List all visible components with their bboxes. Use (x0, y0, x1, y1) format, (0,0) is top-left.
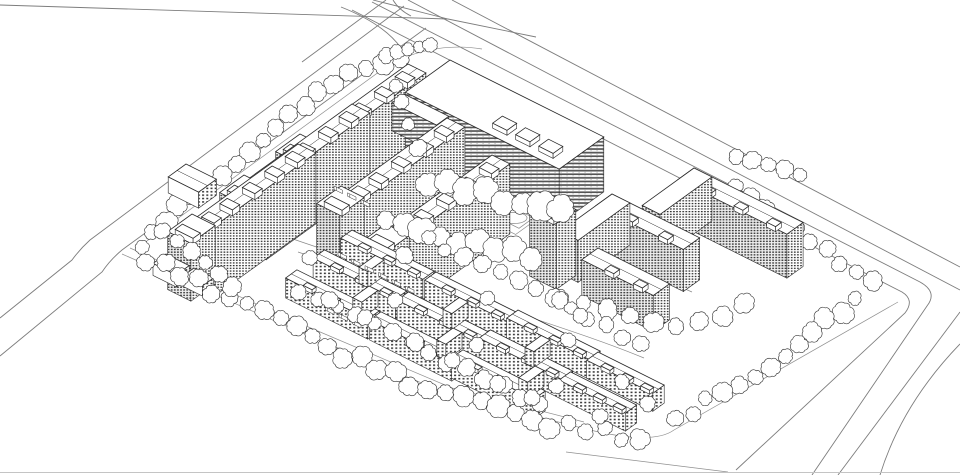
tree (578, 424, 594, 440)
tree (366, 360, 387, 380)
tree (729, 149, 744, 165)
tree (849, 265, 864, 280)
tree (418, 381, 437, 399)
corner-fillet (566, 452, 728, 472)
tree (832, 302, 854, 324)
tree (359, 60, 374, 76)
axonometric-site-plan (0, 0, 960, 475)
branch-fillet-1 (341, 7, 401, 48)
tree (256, 133, 271, 147)
tree (290, 285, 306, 300)
site-plan-canvas (0, 0, 960, 475)
se-corner-trees (666, 291, 861, 426)
tree (734, 293, 755, 313)
tree (170, 234, 184, 247)
tree (137, 254, 155, 271)
tree (819, 240, 836, 257)
tree (437, 385, 453, 401)
tree (748, 370, 763, 385)
sw-road-outer (880, 344, 960, 475)
tree (666, 410, 683, 426)
tree (831, 256, 847, 272)
tree (761, 158, 777, 172)
tree (157, 254, 175, 271)
tree (776, 160, 794, 179)
tree (510, 271, 528, 290)
tree (793, 168, 807, 181)
tree (268, 119, 284, 136)
tree (423, 38, 438, 53)
tree (493, 264, 507, 279)
tree (538, 418, 560, 439)
tree (480, 291, 495, 305)
ne-right-trees (729, 149, 807, 182)
crossing-line (0, 5, 536, 37)
tree (633, 336, 650, 352)
tree (712, 306, 733, 327)
tree (686, 407, 701, 422)
tree (453, 385, 474, 407)
tree (801, 234, 817, 250)
tree (643, 313, 664, 333)
tree (573, 308, 588, 323)
tree (614, 330, 631, 346)
tree (698, 391, 712, 406)
tree (323, 75, 343, 94)
tree (255, 300, 274, 319)
tree (135, 240, 149, 254)
tree (668, 318, 683, 335)
tree (778, 349, 792, 364)
tree (630, 429, 650, 450)
tree (712, 382, 733, 402)
tree (302, 251, 317, 266)
tree (528, 280, 544, 296)
tree (240, 297, 254, 311)
tree (561, 415, 576, 431)
tree (333, 348, 353, 368)
sw-road-far (838, 312, 960, 475)
tree (848, 291, 861, 305)
tree (690, 312, 708, 331)
tree (761, 358, 781, 377)
tree (339, 64, 358, 81)
nw-road-far (302, 0, 386, 62)
tree (279, 105, 297, 123)
